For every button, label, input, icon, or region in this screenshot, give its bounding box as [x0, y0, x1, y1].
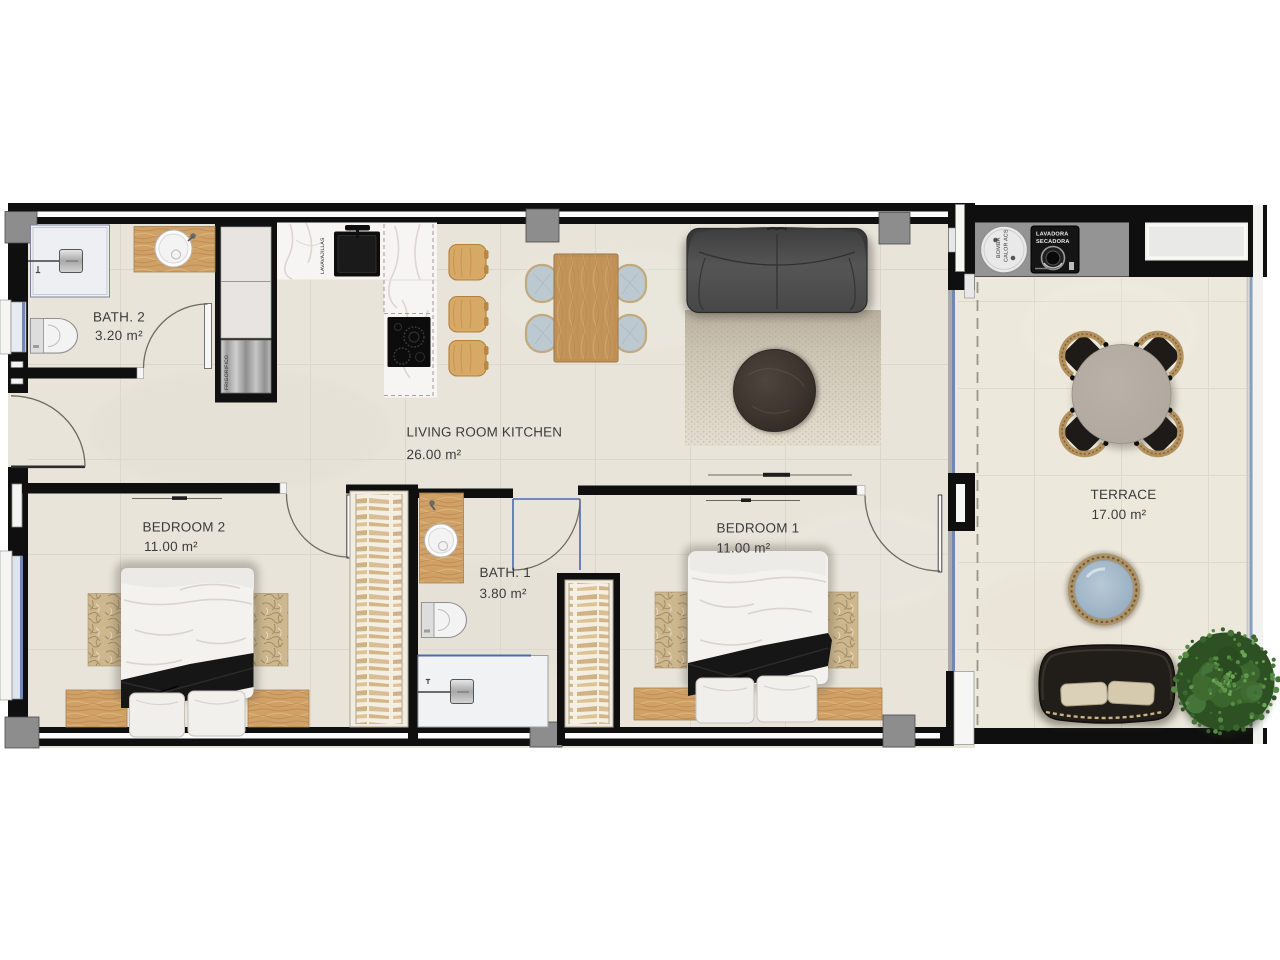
svg-text:17.00 m²: 17.00 m² [1092, 507, 1147, 522]
svg-text:26.00 m²: 26.00 m² [407, 447, 462, 462]
svg-text:LIVING ROOM KITCHEN: LIVING ROOM KITCHEN [407, 425, 563, 440]
svg-text:BEDROOM 2: BEDROOM 2 [143, 520, 226, 535]
svg-text:3.20 m²: 3.20 m² [95, 328, 143, 343]
svg-text:LAVAVAJILLAS: LAVAVAJILLAS [320, 237, 326, 274]
svg-text:LAVADORA: LAVADORA [1036, 232, 1068, 238]
svg-text:CALOR ACS: CALOR ACS [1004, 229, 1010, 262]
svg-text:11.00 m²: 11.00 m² [144, 539, 198, 554]
svg-text:BEDROOM 1: BEDROOM 1 [717, 521, 800, 536]
svg-text:TERRACE: TERRACE [1091, 487, 1157, 502]
svg-text:3.80 m²: 3.80 m² [480, 586, 527, 601]
svg-text:BOMBA: BOMBA [996, 237, 1002, 258]
svg-text:BATH. 1: BATH. 1 [480, 565, 531, 580]
svg-text:SECADORA: SECADORA [1036, 239, 1070, 245]
svg-text:11.00 m²: 11.00 m² [717, 541, 771, 556]
svg-text:FRIGORIFICO: FRIGORIFICO [224, 355, 230, 390]
svg-text:BATH. 2: BATH. 2 [93, 310, 145, 325]
